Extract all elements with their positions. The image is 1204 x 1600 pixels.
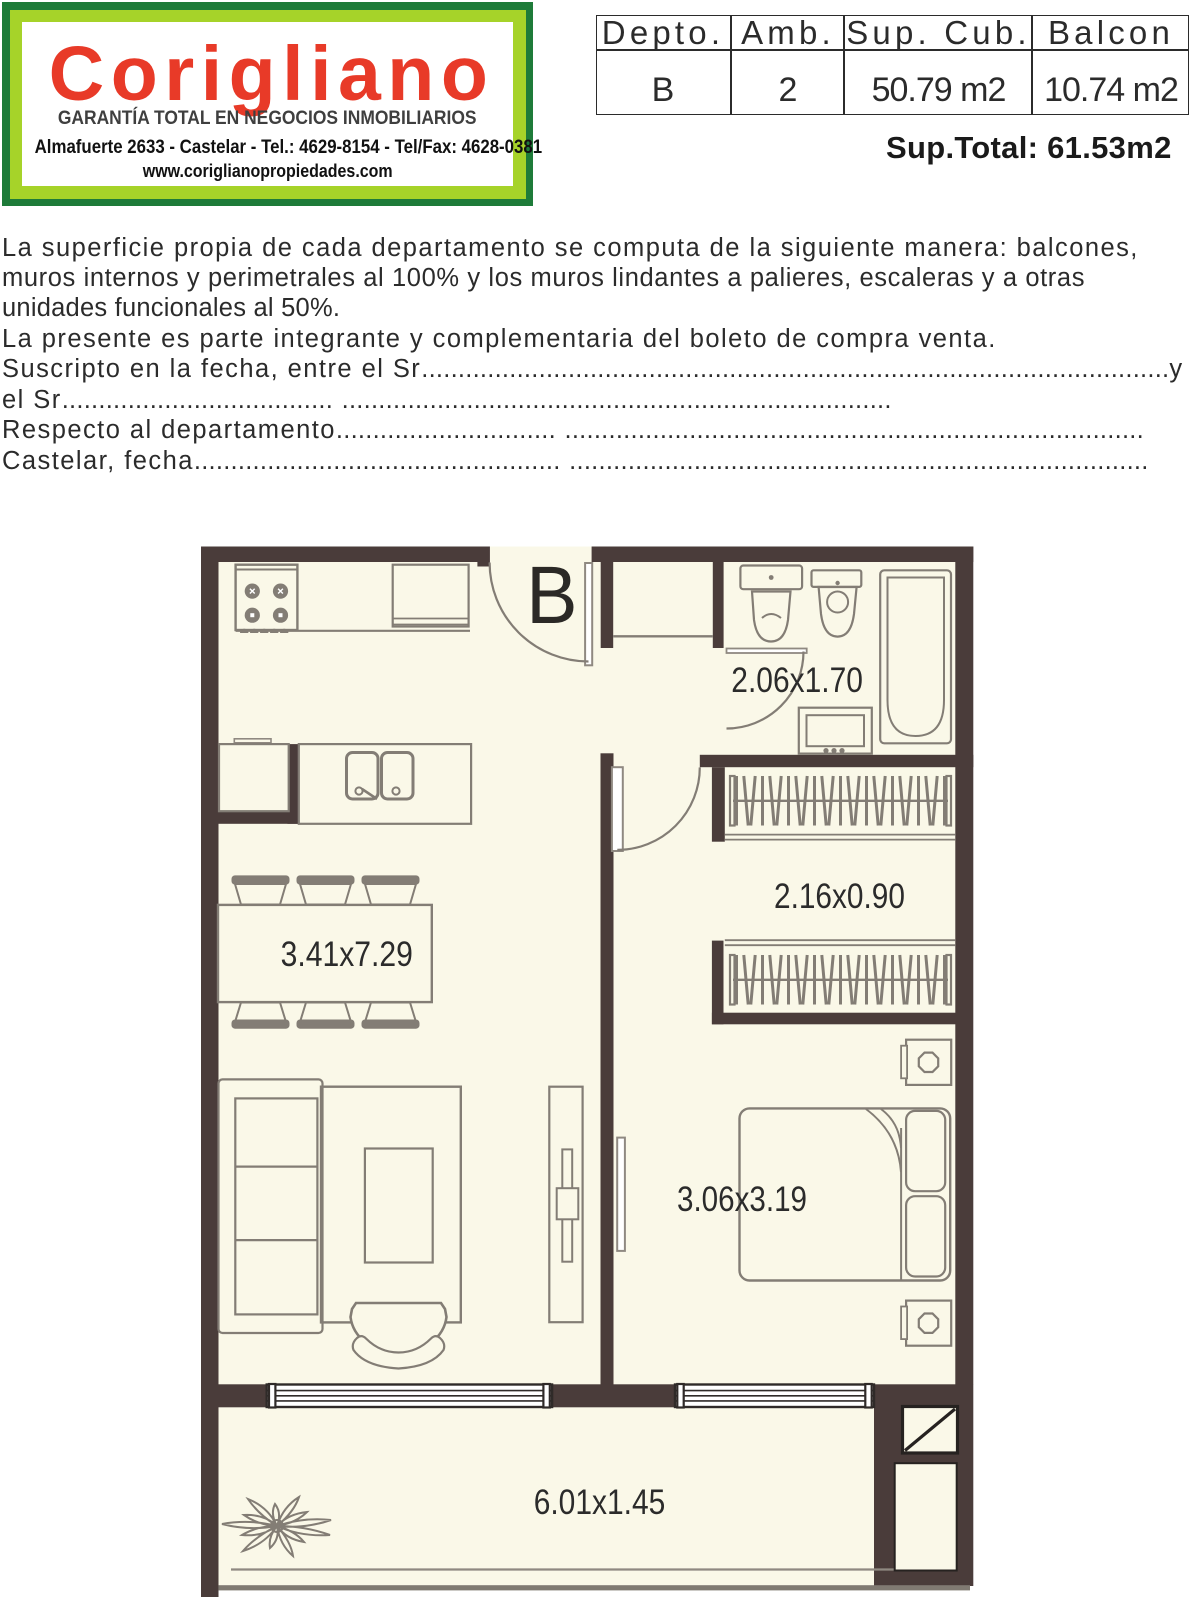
svg-text:3.41x7.29: 3.41x7.29: [281, 935, 413, 974]
svg-text:2.06x1.70: 2.06x1.70: [731, 661, 863, 700]
svg-text:B: B: [526, 549, 577, 641]
svg-text:2.16x0.90: 2.16x0.90: [774, 877, 905, 916]
svg-text:6.01x1.45: 6.01x1.45: [534, 1483, 666, 1522]
svg-text:3.06x3.19: 3.06x3.19: [677, 1180, 807, 1219]
